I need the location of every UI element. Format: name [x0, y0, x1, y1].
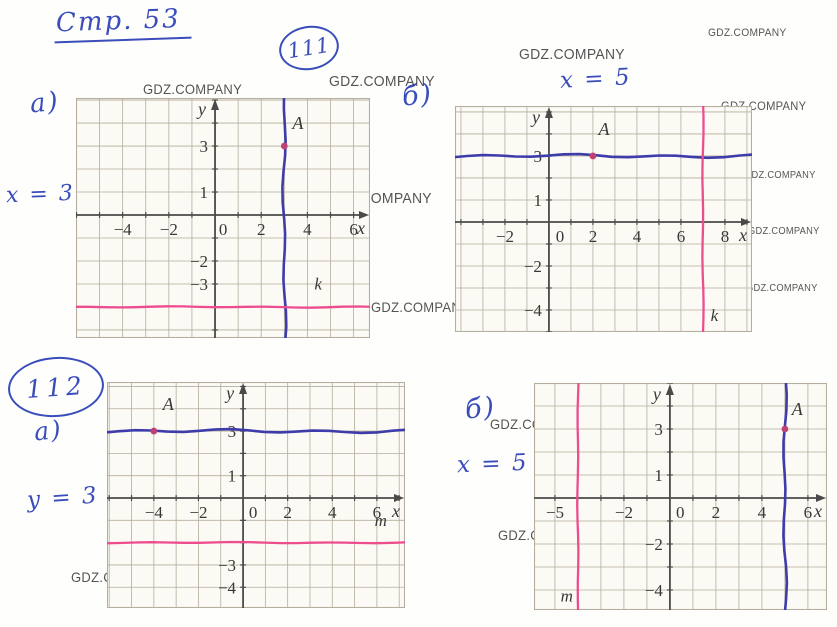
point-label-A: A — [291, 113, 304, 133]
x-tick-label-−2: −2 — [615, 503, 633, 522]
y-tick-label-−2: −2 — [645, 535, 663, 554]
watermark: GDZ.COMPANY — [143, 81, 242, 97]
y-tick-label-−3: −3 — [218, 556, 236, 575]
watermark: GDZ.COMPANY — [329, 73, 435, 90]
y-tick-label-1: 1 — [228, 467, 237, 486]
x-tick-label-2: 2 — [283, 503, 292, 522]
y-tick-label-−4: −4 — [524, 301, 543, 320]
problem-number-111: 111 — [276, 22, 342, 75]
graph-line-k — [702, 106, 703, 332]
page-title: Стр. 53 — [53, 4, 191, 44]
x-tick-label-−2: −2 — [160, 220, 178, 239]
watermark: GDZ.COMPANY — [746, 283, 818, 294]
graph-canvas-graph-112b: −5−2024631−2−4xymA — [534, 383, 827, 610]
point-A — [590, 153, 597, 160]
x-tick-label-−4: −4 — [145, 503, 164, 522]
x-tick-label-2: 2 — [257, 220, 266, 239]
point-A — [281, 143, 288, 150]
y-tick-label-−4: −4 — [218, 578, 237, 597]
graph-111a: −4−2024631−2−3xykA — [76, 98, 370, 338]
x-tick-label-4: 4 — [328, 503, 337, 522]
y-tick-label-3: 3 — [654, 420, 663, 439]
y-axis-label: y — [530, 107, 540, 127]
graph-canvas-graph-112a: −4−2024631−3−4xymA — [107, 382, 405, 608]
x-axis-label: x — [813, 501, 822, 521]
graph-canvas-graph-111b: −20246831−2−4xykA — [455, 106, 752, 332]
graph-canvas-graph-111a: −4−2024631−2−3xykA — [76, 98, 370, 338]
x-tick-label-6: 6 — [804, 503, 813, 522]
watermark: GDZ.COMPANY — [708, 27, 786, 39]
y-tick-label-1: 1 — [200, 183, 209, 202]
point-label-A: A — [791, 399, 804, 419]
graph-112b: −5−2024631−2−4xymA — [534, 383, 827, 610]
page-title-text: Стр. 53 — [55, 4, 181, 38]
graph-paper — [76, 98, 370, 338]
watermark: GDZ.COMPANY — [519, 46, 625, 63]
line-label-m: m — [375, 511, 387, 530]
graph-line-m — [577, 383, 578, 610]
point-label-A: A — [597, 119, 610, 139]
x-tick-label-−2: −2 — [189, 503, 207, 522]
y-axis-label: y — [651, 384, 661, 404]
y-axis-label: y — [196, 99, 206, 119]
x-axis-label: x — [391, 501, 400, 521]
problem-number-112-text: 112 — [25, 370, 87, 403]
x-tick-label-−2: −2 — [496, 227, 514, 246]
part-label-112a: а) — [33, 415, 65, 447]
y-tick-label-3: 3 — [228, 422, 237, 441]
y-axis-label: y — [224, 383, 234, 403]
x-tick-label-0: 0 — [556, 227, 565, 246]
equation-x-equals-5-top: x = 5 — [559, 64, 632, 94]
watermark: GDZ.COMPANY — [748, 226, 820, 237]
x-axis-label: x — [738, 225, 747, 245]
equation-y-equals-3: y = 3 — [26, 483, 99, 514]
y-tick-label-1: 1 — [654, 466, 663, 485]
x-tick-label-4: 4 — [633, 227, 642, 246]
point-A — [150, 428, 157, 435]
y-tick-label-−3: −3 — [190, 275, 208, 294]
equation-x-equals-3: x = 3 — [6, 181, 76, 208]
x-tick-label-0: 0 — [676, 503, 685, 522]
x-tick-label-0: 0 — [219, 220, 228, 239]
line-label-k: k — [711, 306, 719, 325]
graph-112a: −4−2024631−3−4xymA — [107, 382, 405, 608]
problem-number-112: 112 — [6, 354, 106, 421]
x-tick-label-6: 6 — [677, 227, 686, 246]
x-tick-label-4: 4 — [303, 220, 312, 239]
graph-line-k — [76, 306, 370, 307]
y-tick-label-3: 3 — [200, 137, 209, 156]
equation-x-equals-5-bottom: x = 5 — [457, 450, 529, 478]
graph-paper — [107, 382, 405, 608]
line-label-k: k — [314, 275, 322, 294]
y-tick-label-−2: −2 — [524, 257, 542, 276]
x-tick-label-−4: −4 — [114, 220, 133, 239]
page: Стр. 53 111 112 а)x = 3б)x = 5а)y = 3б)x… — [0, 0, 837, 627]
graph-111b: −20246831−2−4xykA — [455, 106, 752, 332]
x-axis-label: x — [356, 218, 365, 238]
graph-line-m — [107, 542, 405, 543]
point-label-A: A — [162, 394, 175, 414]
y-tick-label-−4: −4 — [645, 581, 664, 600]
y-tick-label-1: 1 — [533, 191, 542, 210]
y-tick-label-−2: −2 — [190, 252, 208, 271]
x-tick-label-2: 2 — [712, 503, 721, 522]
x-tick-label-4: 4 — [758, 503, 767, 522]
x-tick-label-−5: −5 — [546, 503, 564, 522]
part-label-111a: а) — [29, 87, 62, 120]
graph-paper — [455, 106, 752, 332]
point-A — [782, 426, 789, 433]
problem-number-111-text: 111 — [286, 33, 332, 63]
line-label-m: m — [561, 586, 573, 605]
x-tick-label-8: 8 — [721, 227, 730, 246]
watermark: GDZ.COMPANY — [744, 170, 816, 181]
x-tick-label-2: 2 — [589, 227, 598, 246]
x-tick-label-0: 0 — [249, 503, 257, 522]
